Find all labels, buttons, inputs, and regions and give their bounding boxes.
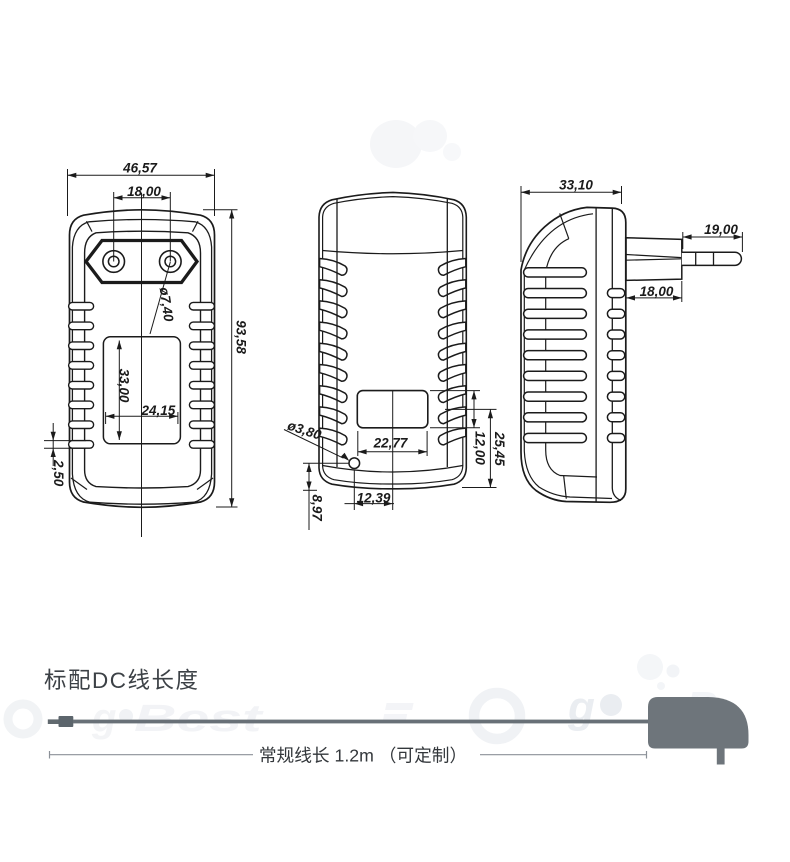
svg-text:19,00: 19,00 <box>704 222 738 237</box>
svg-text:25,45: 25,45 <box>492 431 507 466</box>
svg-text:12,39: 12,39 <box>357 491 391 506</box>
svg-text:93,58: 93,58 <box>234 320 249 354</box>
svg-text:46,57: 46,57 <box>122 161 158 176</box>
svg-text:g: g <box>91 696 116 740</box>
svg-text:33,10: 33,10 <box>559 178 593 193</box>
svg-text:常规线长 1.2m （可定制）: 常规线长 1.2m （可定制） <box>259 746 467 766</box>
svg-text:22,77: 22,77 <box>373 435 409 450</box>
svg-text:标配DC线长度: 标配DC线长度 <box>44 668 200 693</box>
svg-text:g: g <box>567 683 595 732</box>
svg-text:8,97: 8,97 <box>310 495 325 523</box>
svg-text:12,00: 12,00 <box>473 431 488 465</box>
svg-text:2,50: 2,50 <box>51 459 66 487</box>
svg-text:33,00: 33,00 <box>117 369 132 403</box>
svg-text:24,15: 24,15 <box>141 403 176 418</box>
svg-text:Best: Best <box>134 696 265 739</box>
svg-text:18,00: 18,00 <box>640 284 674 299</box>
svg-text:18,00: 18,00 <box>127 184 161 199</box>
